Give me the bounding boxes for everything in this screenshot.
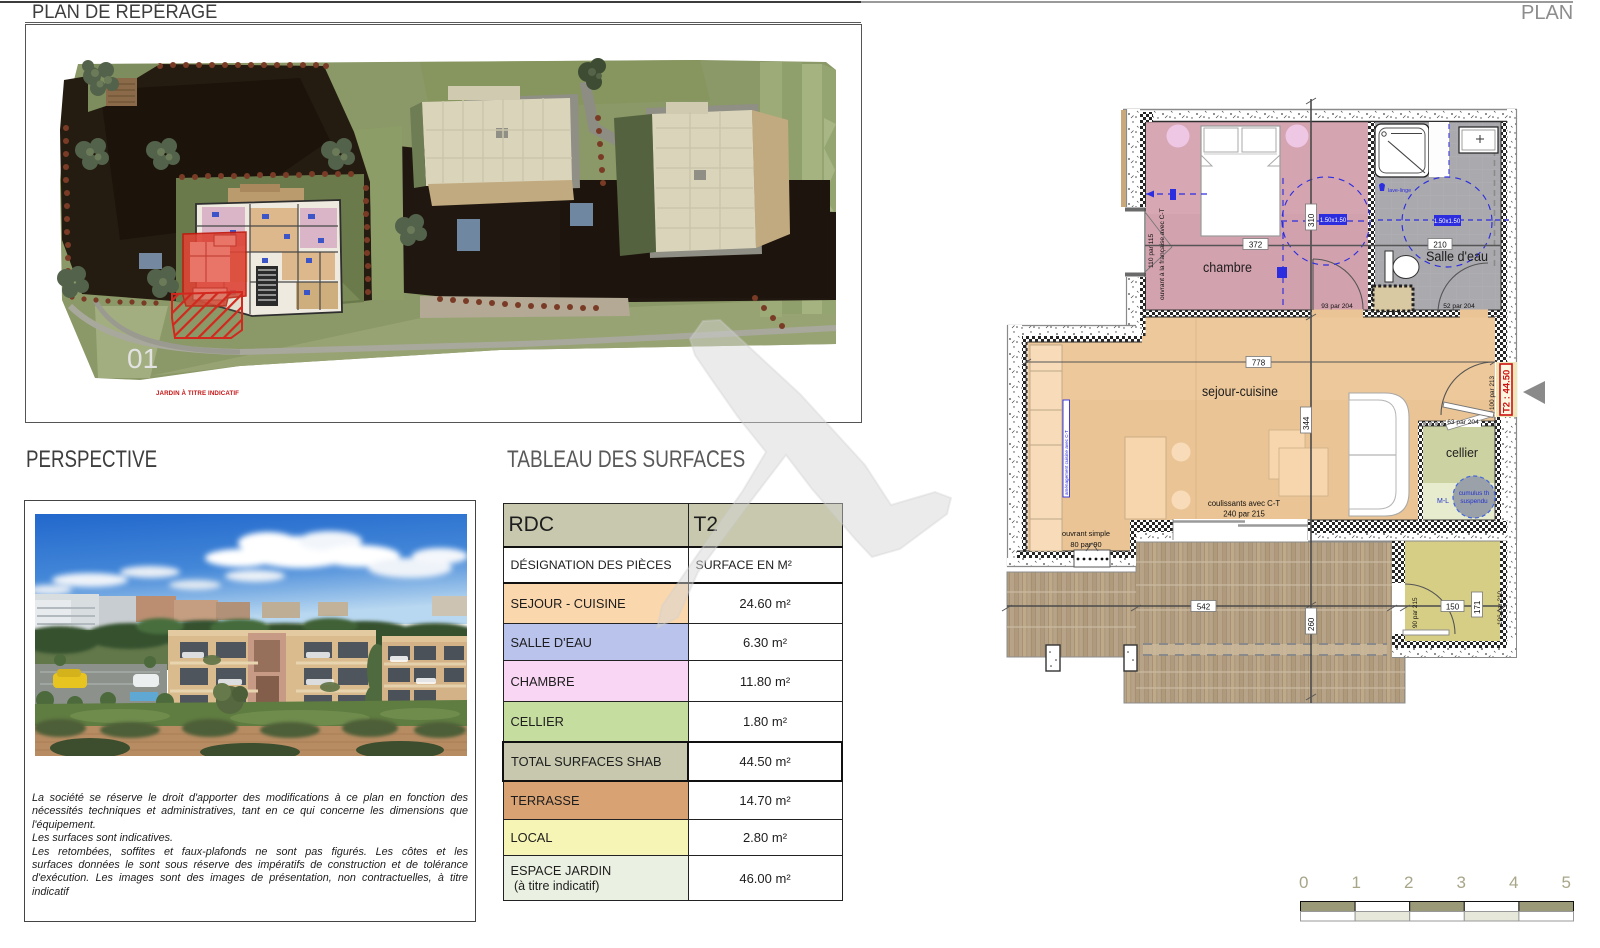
- svg-text:778: 778: [1252, 359, 1266, 368]
- svg-text:cellier: cellier: [1446, 446, 1478, 460]
- svg-text:90 par 215: 90 par 215: [1412, 597, 1419, 628]
- svg-text:93 par 204: 93 par 204: [1321, 303, 1353, 310]
- svg-text:171: 171: [1473, 600, 1482, 614]
- svg-text:coulissants avec C-T: coulissants avec C-T: [1208, 499, 1281, 508]
- svg-text:Salle d'eau: Salle d'eau: [1426, 249, 1488, 264]
- svg-text:1.50x1.50: 1.50x1.50: [1320, 218, 1347, 224]
- svg-text:suspendu: suspendu: [1460, 498, 1488, 505]
- svg-text:52 par 204: 52 par 204: [1443, 303, 1475, 310]
- svg-text:260: 260: [1307, 617, 1316, 631]
- svg-text:cumulus th: cumulus th: [1459, 490, 1490, 497]
- svg-text:110 par 115: 110 par 115: [1148, 233, 1155, 268]
- svg-text:chambre: chambre: [1203, 260, 1252, 275]
- svg-text:63 par 204: 63 par 204: [1447, 419, 1479, 426]
- svg-text:310: 310: [1307, 213, 1316, 227]
- svg-text:344: 344: [1302, 416, 1311, 430]
- svg-text:542: 542: [1197, 603, 1211, 612]
- svg-text:106 par 210: 106 par 210: [1497, 590, 1504, 625]
- svg-text:80 par 90: 80 par 90: [1070, 540, 1101, 549]
- svg-text:ouvrant à la française avec C-: ouvrant à la française avec C-T: [1159, 208, 1166, 300]
- svg-text:150: 150: [1446, 603, 1460, 612]
- svg-text:240 par 215: 240 par 215: [1223, 510, 1265, 519]
- svg-text:372: 372: [1249, 241, 1263, 250]
- svg-text:lave-linge: lave-linge: [1388, 188, 1411, 194]
- svg-text:JARDIN À TITRE INDICATIF: JARDIN À TITRE INDICATIF: [156, 390, 239, 397]
- svg-text:sejour-cuisine: sejour-cuisine: [1202, 384, 1278, 399]
- svg-text:01: 01: [127, 343, 158, 374]
- svg-text:ouvrant simple: ouvrant simple: [1062, 529, 1110, 538]
- svg-text:aménagement cuisine avec C-T: aménagement cuisine avec C-T: [1064, 430, 1069, 495]
- svg-text:1.50x1.50: 1.50x1.50: [1434, 219, 1461, 225]
- svg-text:100 par 213: 100 par 213: [1489, 375, 1496, 410]
- svg-text:T2 : 44.50: T2 : 44.50: [1502, 370, 1513, 413]
- svg-text:M-L: M-L: [1437, 498, 1449, 505]
